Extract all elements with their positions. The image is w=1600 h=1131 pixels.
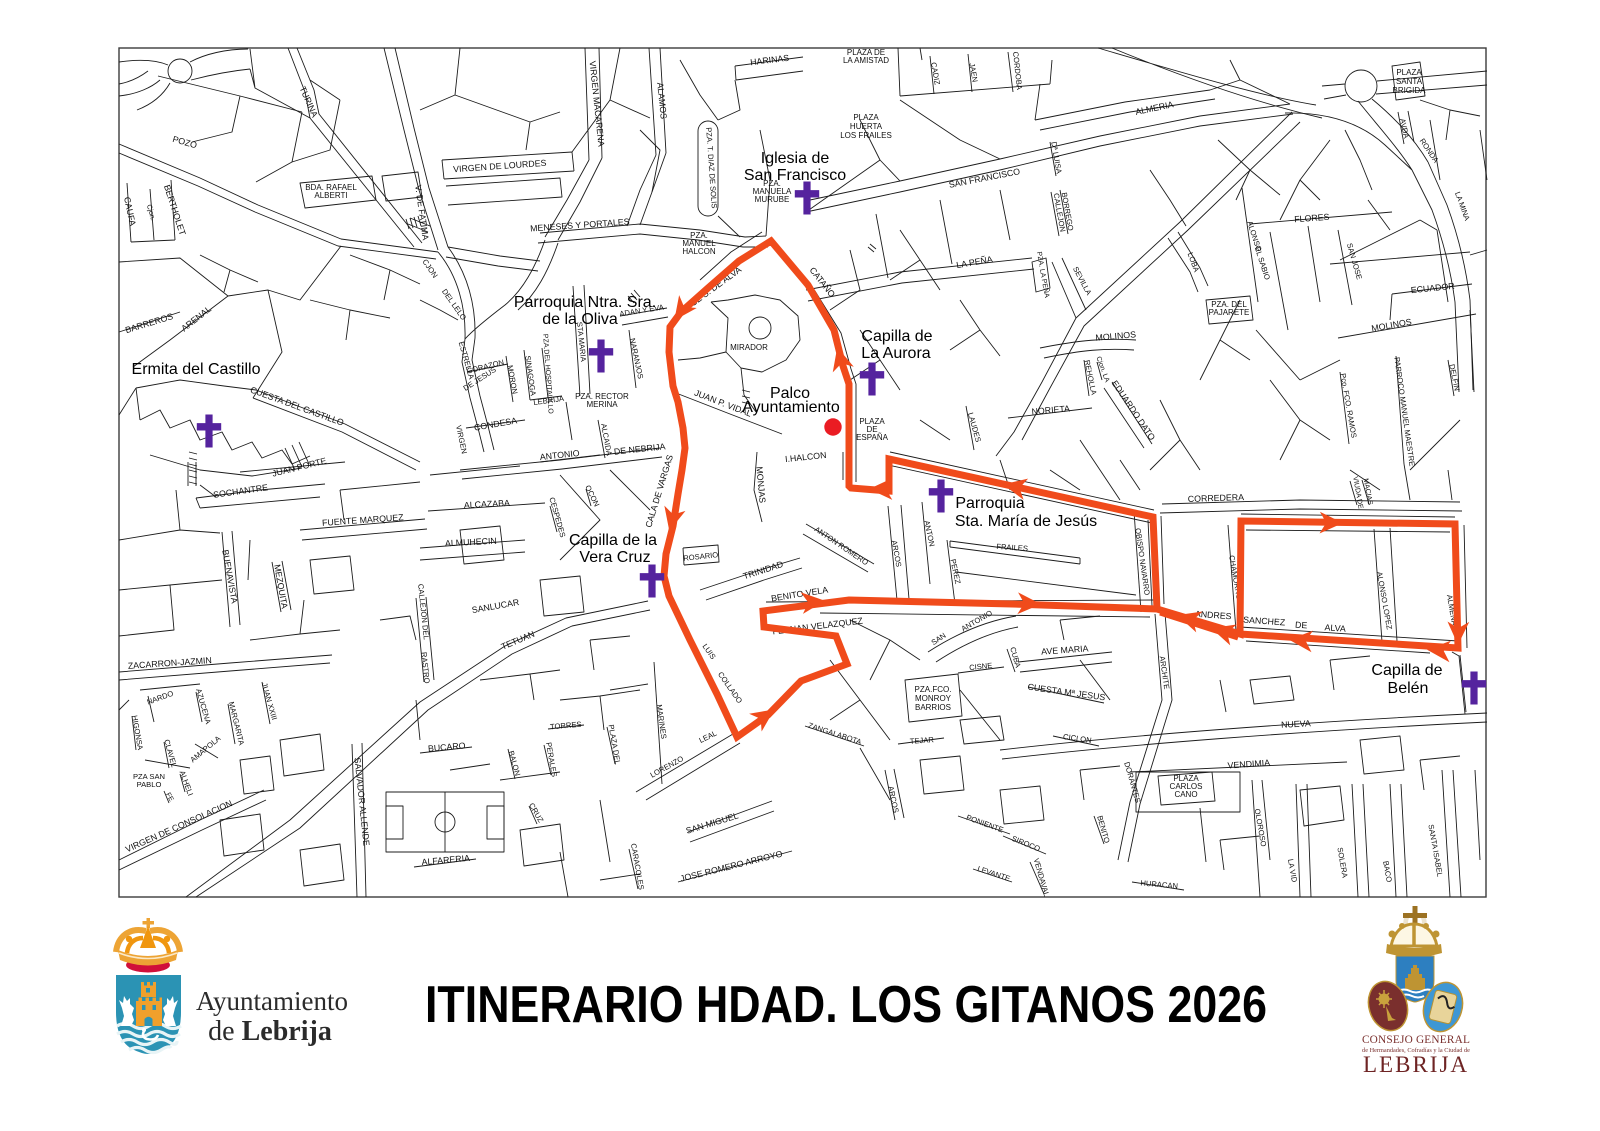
svg-text:Capilla de: Capilla de — [1371, 662, 1442, 679]
svg-text:CORREDERA: CORREDERA — [1188, 492, 1245, 504]
svg-text:PABLO: PABLO — [137, 780, 162, 789]
svg-text:CANO: CANO — [1174, 790, 1197, 799]
svg-text:LA AMISTAD: LA AMISTAD — [843, 56, 889, 65]
svg-text:LOS FRAILES: LOS FRAILES — [840, 131, 892, 140]
svg-text:PLAZA: PLAZA — [853, 113, 879, 122]
svg-text:Iglesia de: Iglesia de — [761, 150, 830, 167]
svg-text:HALCON: HALCON — [682, 247, 716, 256]
svg-text:ALVA: ALVA — [1324, 622, 1346, 633]
svg-text:PAJARETE: PAJARETE — [1209, 308, 1250, 317]
svg-text:de Lebrija: de Lebrija — [208, 1016, 332, 1047]
svg-text:San Francisco: San Francisco — [744, 167, 846, 184]
svg-text:Capilla de: Capilla de — [861, 328, 932, 345]
svg-text:TEJAR: TEJAR — [910, 735, 935, 746]
svg-text:HUERTA: HUERTA — [850, 122, 883, 131]
svg-text:Capilla de la: Capilla de la — [569, 532, 657, 549]
svg-text:MIRADOR: MIRADOR — [730, 343, 768, 352]
svg-text:MONROY: MONROY — [915, 694, 952, 703]
svg-text:ITINERARIO HDAD. LOS GITANOS 2: ITINERARIO HDAD. LOS GITANOS 2026 — [425, 976, 1267, 1034]
svg-text:La Aurora: La Aurora — [861, 345, 930, 362]
svg-text:DE: DE — [1295, 620, 1308, 631]
svg-text:BARRIOS: BARRIOS — [915, 703, 951, 712]
svg-text:LEBRIJA: LEBRIJA — [1363, 1052, 1469, 1077]
svg-text:Vera Cruz: Vera Cruz — [579, 549, 650, 566]
svg-text:Ayuntamiento: Ayuntamiento — [196, 986, 348, 1016]
svg-text:Ayuntamiento: Ayuntamiento — [742, 399, 840, 416]
svg-text:BRIGIDA: BRIGIDA — [1393, 86, 1427, 95]
svg-text:MERINA: MERINA — [586, 400, 618, 409]
svg-text:Parroquia: Parroquia — [955, 495, 1024, 512]
svg-text:Ermita del Castillo: Ermita del Castillo — [132, 361, 261, 378]
svg-text:PLAZA: PLAZA — [1396, 68, 1422, 77]
svg-text:de la Oliva: de la Oliva — [542, 311, 618, 328]
svg-text:SANTA: SANTA — [1396, 77, 1423, 86]
svg-text:NUEVA: NUEVA — [1281, 718, 1311, 730]
svg-text:Belén: Belén — [1388, 680, 1429, 697]
svg-text:ALBERTI: ALBERTI — [314, 191, 347, 200]
svg-text:Parroquia Ntra. Sra.: Parroquia Ntra. Sra. — [514, 294, 656, 311]
svg-text:Sta. María de Jesús: Sta. María de Jesús — [955, 513, 1097, 530]
svg-text:CONSEJO GENERAL: CONSEJO GENERAL — [1362, 1034, 1470, 1046]
svg-text:ESPAÑA: ESPAÑA — [856, 433, 889, 442]
svg-text:MURUBE: MURUBE — [755, 195, 790, 204]
svg-text:PZA.FCO.: PZA.FCO. — [915, 685, 952, 694]
